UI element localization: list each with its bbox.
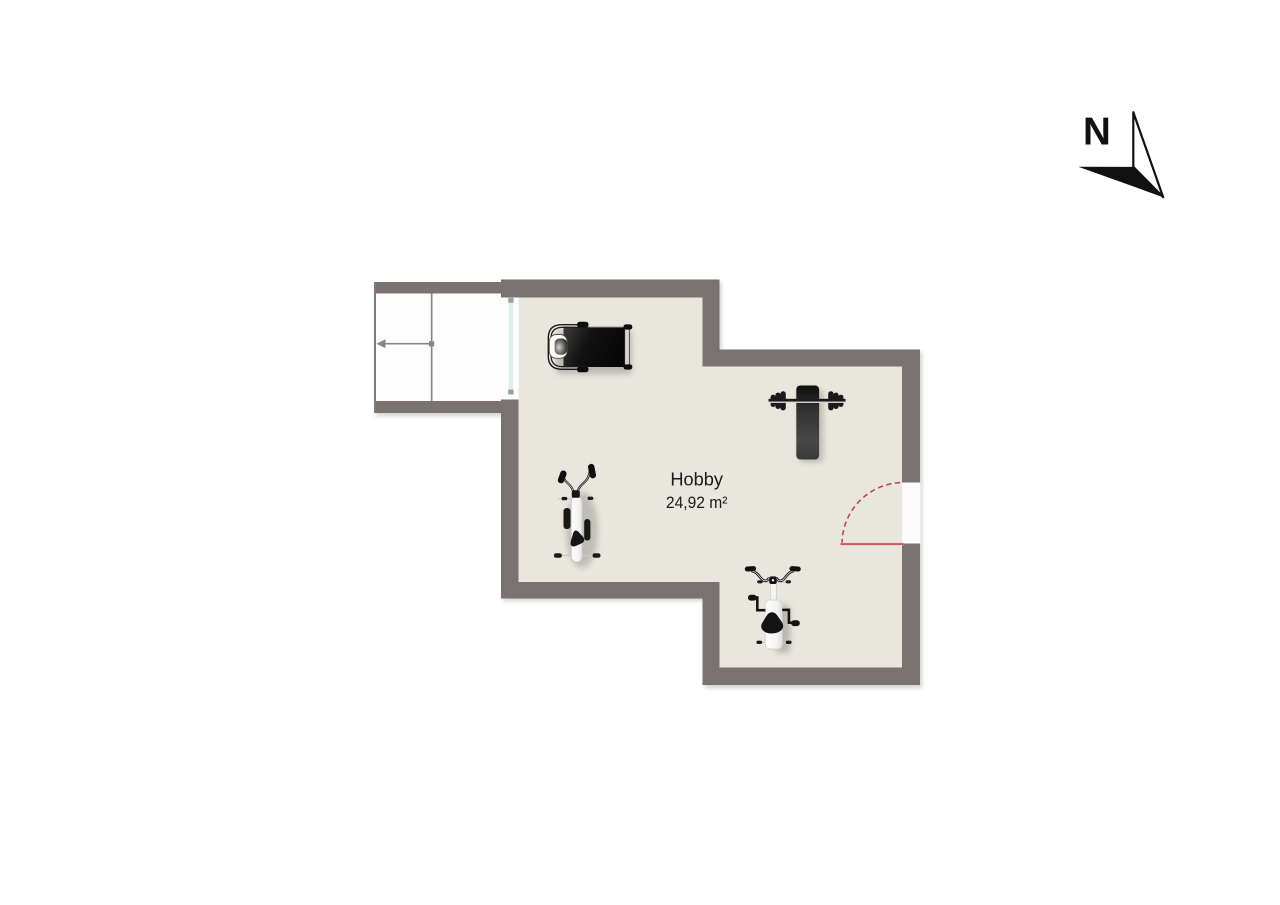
svg-text:24,92 m²: 24,92 m² xyxy=(666,493,728,512)
svg-text:N: N xyxy=(1083,111,1111,154)
svg-text:Hobby: Hobby xyxy=(670,470,723,490)
